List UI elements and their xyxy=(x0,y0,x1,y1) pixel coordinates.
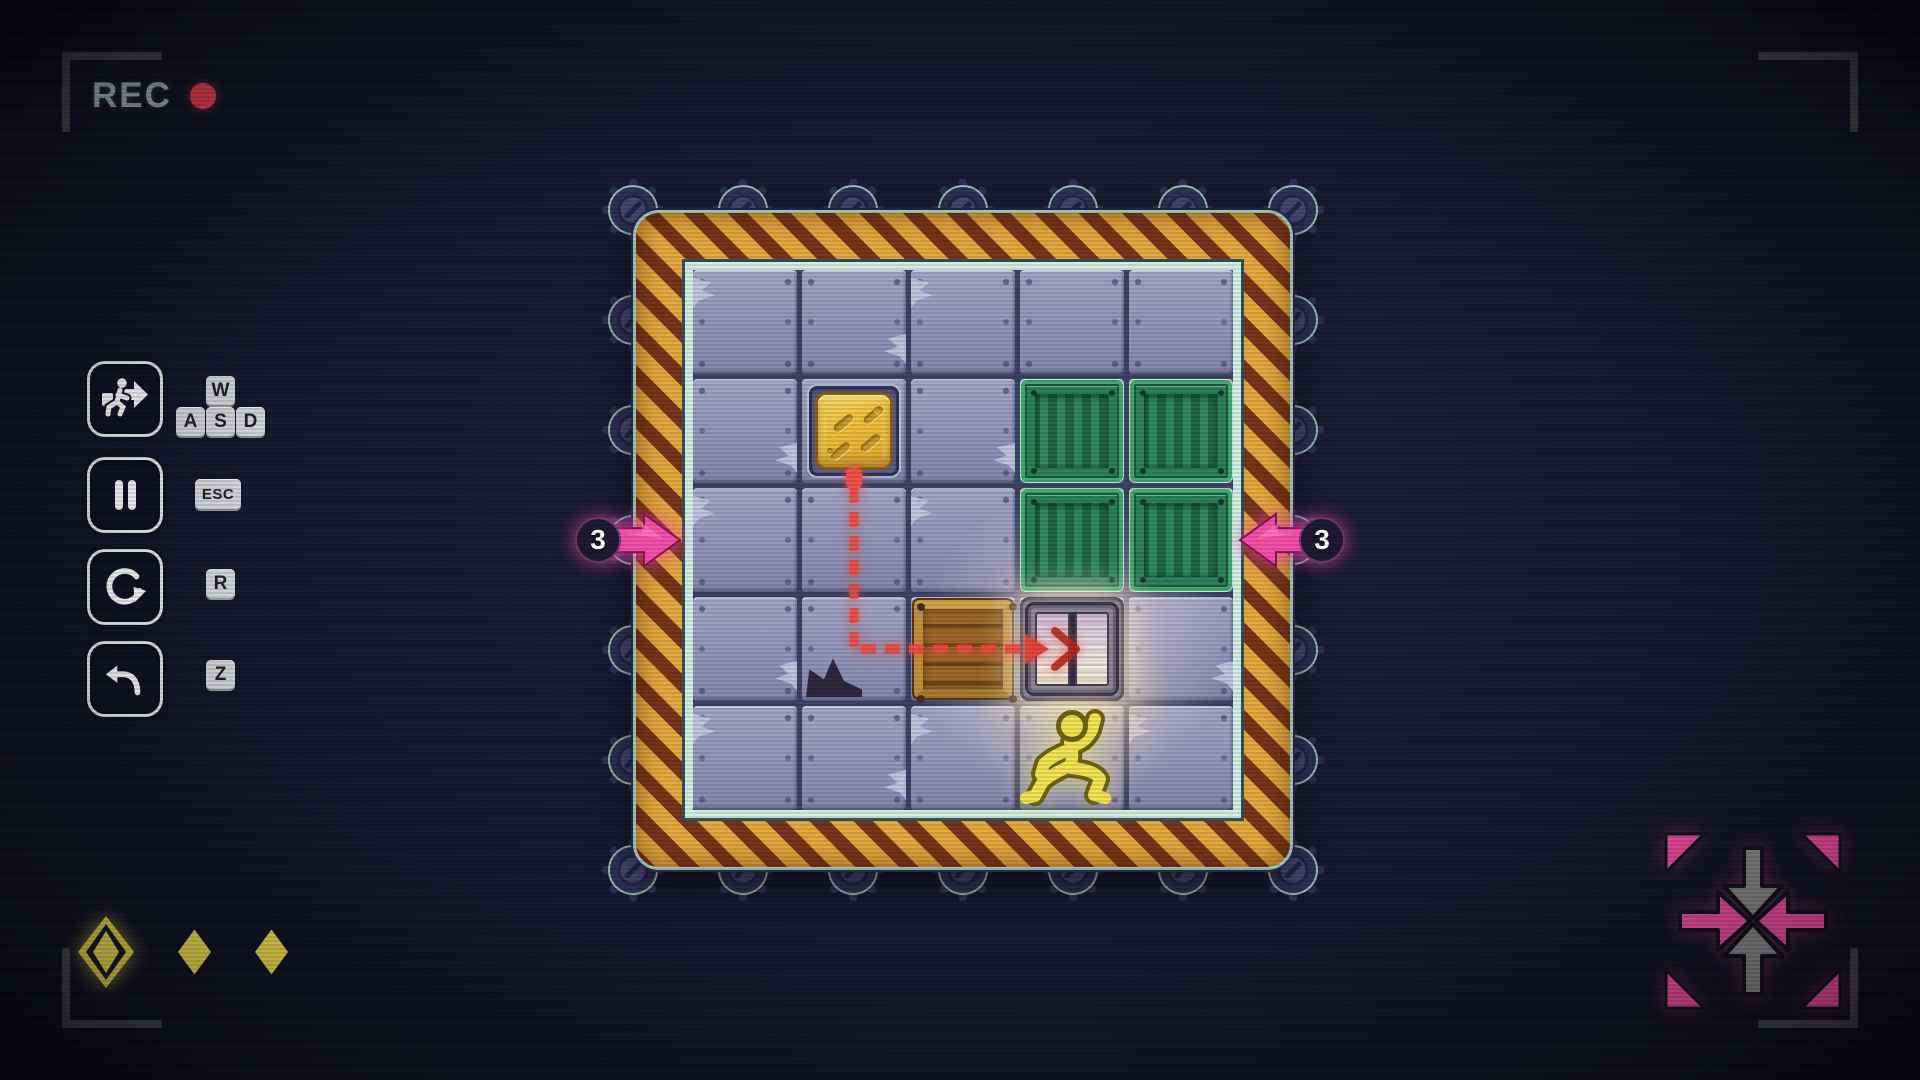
rec-dot-icon xyxy=(190,83,216,109)
undo-icon xyxy=(102,656,148,702)
viewfinder-bracket-bottom-left xyxy=(62,948,70,1028)
puzzle-board xyxy=(633,210,1293,870)
player-character xyxy=(1020,706,1124,810)
viewfinder-bracket-top-right xyxy=(1758,52,1858,60)
crate-slats xyxy=(1035,394,1109,468)
row-counter-left: 3 xyxy=(575,517,621,563)
restart-icon xyxy=(102,564,148,610)
door-panel-right xyxy=(1075,612,1110,686)
key-a: A xyxy=(176,407,205,436)
game-screen: REC W A S D ESC R xyxy=(0,0,1920,1080)
row-counter-right: 3 xyxy=(1299,517,1345,563)
key-d: D xyxy=(236,407,265,436)
entity-wooden-crate xyxy=(911,597,1015,701)
viewfinder-bracket-bottom-left xyxy=(62,1020,162,1028)
crate-slats xyxy=(1144,394,1218,468)
entity-door xyxy=(1020,597,1124,701)
playfield xyxy=(693,270,1233,810)
viewfinder-bracket-bottom-right xyxy=(1758,1020,1858,1028)
key-s: S xyxy=(206,407,235,436)
key-z: Z xyxy=(206,660,235,689)
entity-green-crate xyxy=(1129,488,1233,592)
key-esc: ESC xyxy=(195,479,241,509)
viewfinder-bracket-top-left xyxy=(62,52,162,60)
pressure-pad xyxy=(815,392,893,470)
runner-arrow-icon xyxy=(99,375,151,423)
board-entities xyxy=(693,270,1233,810)
entity-player xyxy=(1020,706,1124,810)
green-crate xyxy=(1021,380,1123,482)
rec-label: REC xyxy=(92,76,172,116)
green-crate xyxy=(1130,489,1232,591)
viewfinder-bracket-top-right xyxy=(1850,52,1858,132)
wooden-crate xyxy=(914,600,1012,698)
green-crate xyxy=(1021,489,1123,591)
gem-filled-icon xyxy=(178,930,211,975)
crate-slats xyxy=(1035,503,1109,577)
gem-filled-icon xyxy=(255,930,288,975)
viewfinder-bracket-top-left xyxy=(62,52,70,132)
door-panel-left xyxy=(1035,612,1070,686)
gem-highlighted-icon xyxy=(78,916,134,988)
entity-green-crate xyxy=(1129,379,1233,483)
gem-core xyxy=(93,931,119,973)
exit-door xyxy=(1025,602,1119,696)
restart-button[interactable] xyxy=(87,549,163,625)
key-r: R xyxy=(206,569,235,598)
pause-button[interactable] xyxy=(87,457,163,533)
undo-button[interactable] xyxy=(87,641,163,717)
pause-icon xyxy=(103,473,147,517)
collapse-arrows-icon[interactable] xyxy=(1664,832,1842,1010)
key-w: W xyxy=(206,376,235,405)
gem-counter xyxy=(78,912,288,992)
green-crate xyxy=(1130,380,1232,482)
entity-green-crate xyxy=(1020,379,1124,483)
entity-green-crate xyxy=(1020,488,1124,592)
move-button[interactable] xyxy=(87,361,163,437)
rec-indicator: REC xyxy=(92,76,216,116)
viewfinder-bracket-bottom-right xyxy=(1850,948,1858,1028)
door-panels xyxy=(1035,612,1109,686)
crate-slats xyxy=(1144,503,1218,577)
entity-pressure-pad xyxy=(802,379,906,483)
